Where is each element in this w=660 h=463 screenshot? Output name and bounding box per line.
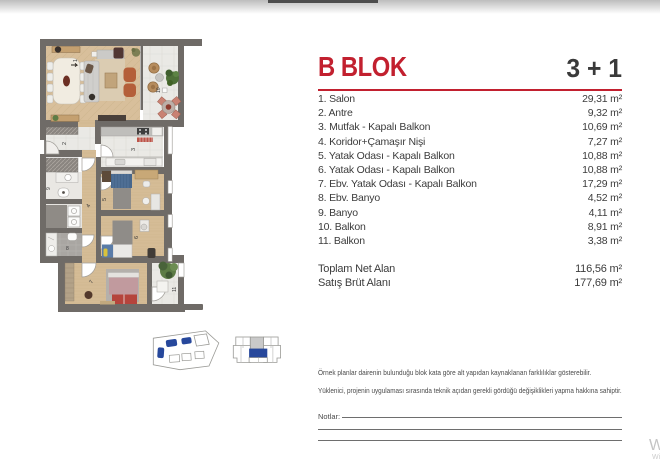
svg-text:11: 11: [172, 287, 178, 292]
svg-text:2: 2: [62, 142, 68, 145]
svg-text:8: 8: [66, 246, 69, 252]
svg-text:9: 9: [46, 187, 52, 190]
svg-text:10: 10: [156, 87, 162, 93]
svg-text:5: 5: [102, 198, 108, 201]
svg-text:3: 3: [131, 148, 137, 151]
svg-text:6: 6: [134, 236, 140, 239]
svg-text:1: 1: [73, 59, 79, 62]
